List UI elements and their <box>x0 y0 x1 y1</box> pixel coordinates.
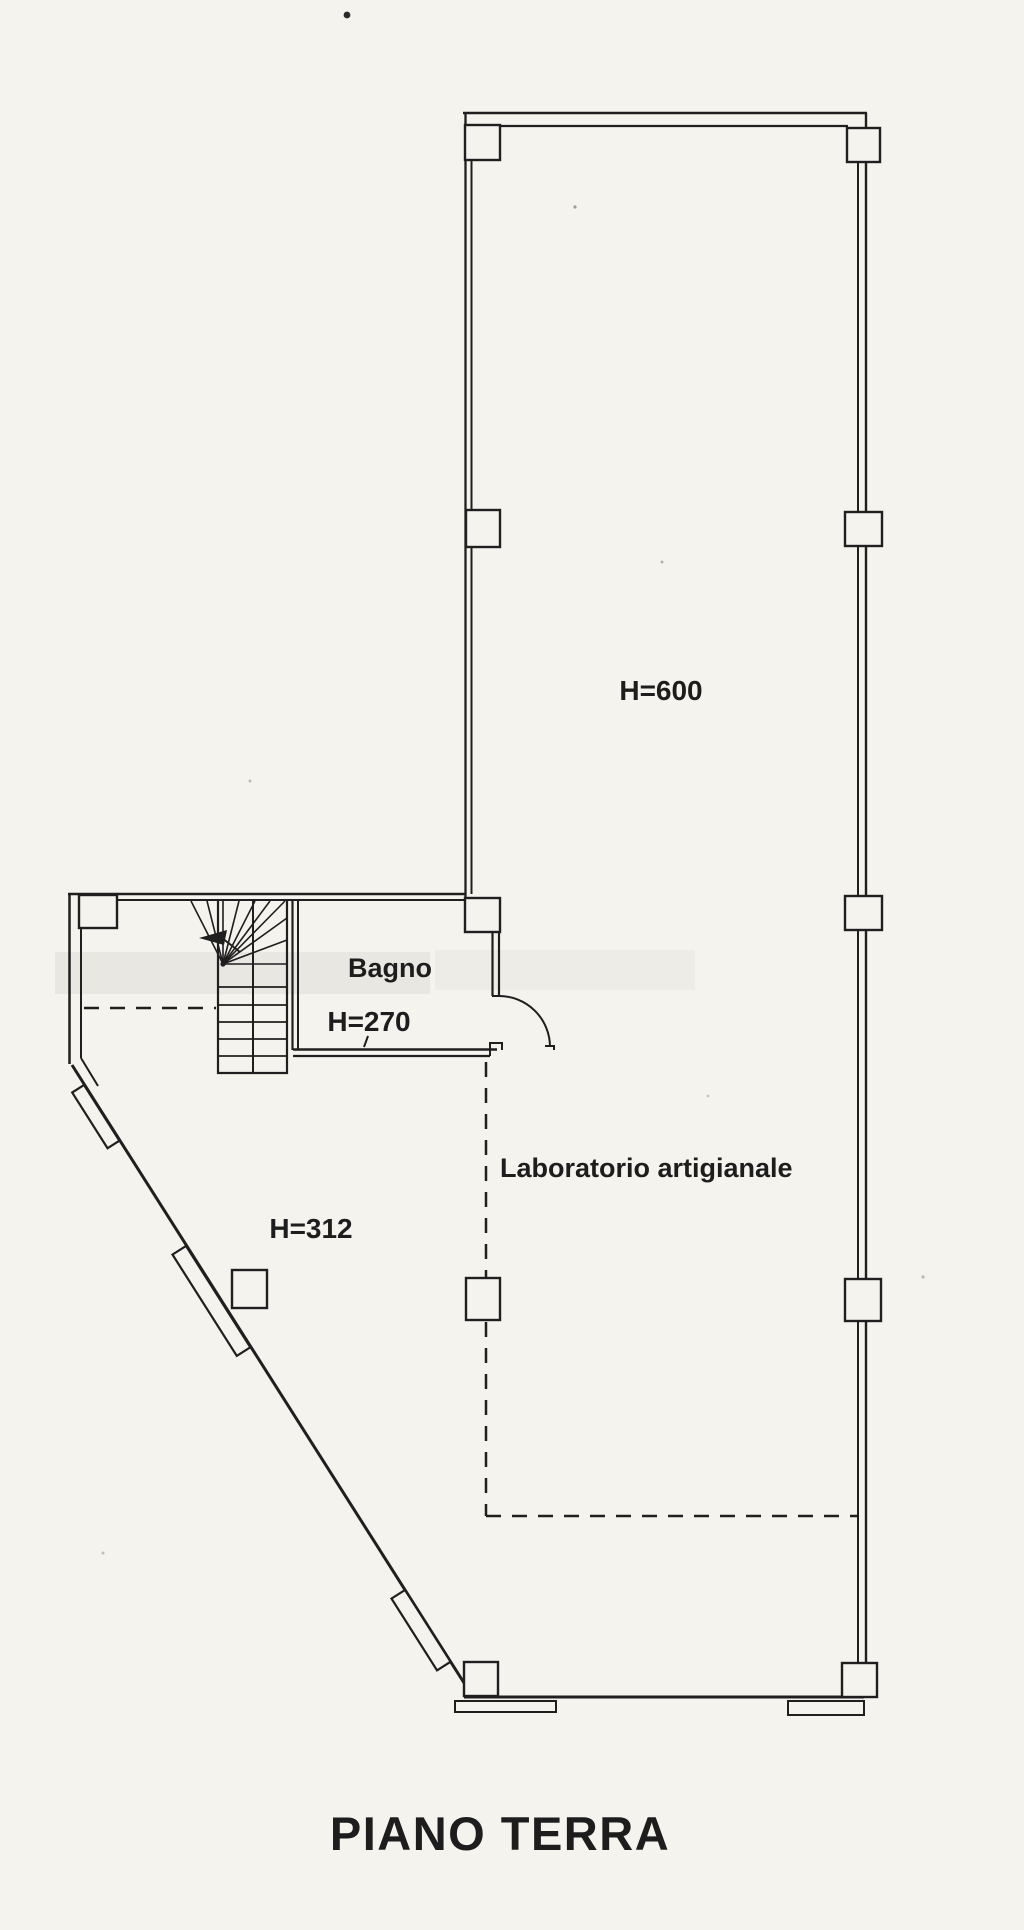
diagonal-window-upper <box>72 1085 119 1148</box>
fan-center-dot <box>220 961 225 966</box>
scanned-floor-plan-page: H=600 Bagno H=270 Laboratorio artigianal… <box>0 0 1024 1930</box>
ink-speck <box>661 561 664 564</box>
pillar <box>847 128 880 162</box>
ink-speck <box>921 1275 924 1278</box>
floor-title: PIANO TERRA <box>330 1807 670 1860</box>
scan-artifacts <box>55 12 925 1555</box>
ink-speck <box>573 205 576 208</box>
diagonal-window-lower <box>391 1590 450 1670</box>
dashed-boundary-group <box>84 1008 858 1516</box>
pillar <box>232 1270 267 1308</box>
laboratorio-height-label: H=312 <box>269 1213 352 1244</box>
floor-plan-svg: H=600 Bagno H=270 Laboratorio artigianal… <box>0 0 1024 1930</box>
ink-speck <box>707 1095 710 1098</box>
main-room-height-label: H=600 <box>619 675 702 706</box>
pillar <box>465 898 500 932</box>
pillar <box>465 125 500 160</box>
pillar <box>845 512 882 546</box>
labels-group: H=600 Bagno H=270 Laboratorio artigianal… <box>269 675 792 1860</box>
stray-pen-tick <box>364 1036 368 1047</box>
pillar <box>464 1662 498 1696</box>
ink-speck <box>102 1552 105 1555</box>
ink-speck <box>344 12 351 19</box>
laboratorio-label: Laboratorio artigianale <box>500 1153 793 1183</box>
bagno-height-label: H=270 <box>327 1006 410 1037</box>
scan-smudge <box>435 950 695 990</box>
bottom-wall-sill-right <box>788 1701 864 1715</box>
door-swing-arc <box>499 996 550 1047</box>
pillars-group <box>79 125 882 1697</box>
pillar <box>466 510 500 547</box>
pillar <box>79 895 117 928</box>
bottom-wall-sill-left <box>455 1701 556 1712</box>
ink-speck <box>249 780 252 783</box>
pillar <box>845 1279 881 1321</box>
pillar <box>466 1278 500 1320</box>
door-group <box>499 996 550 1047</box>
pillar <box>845 896 882 930</box>
bagno-label: Bagno <box>348 953 432 983</box>
pillar <box>842 1663 877 1697</box>
